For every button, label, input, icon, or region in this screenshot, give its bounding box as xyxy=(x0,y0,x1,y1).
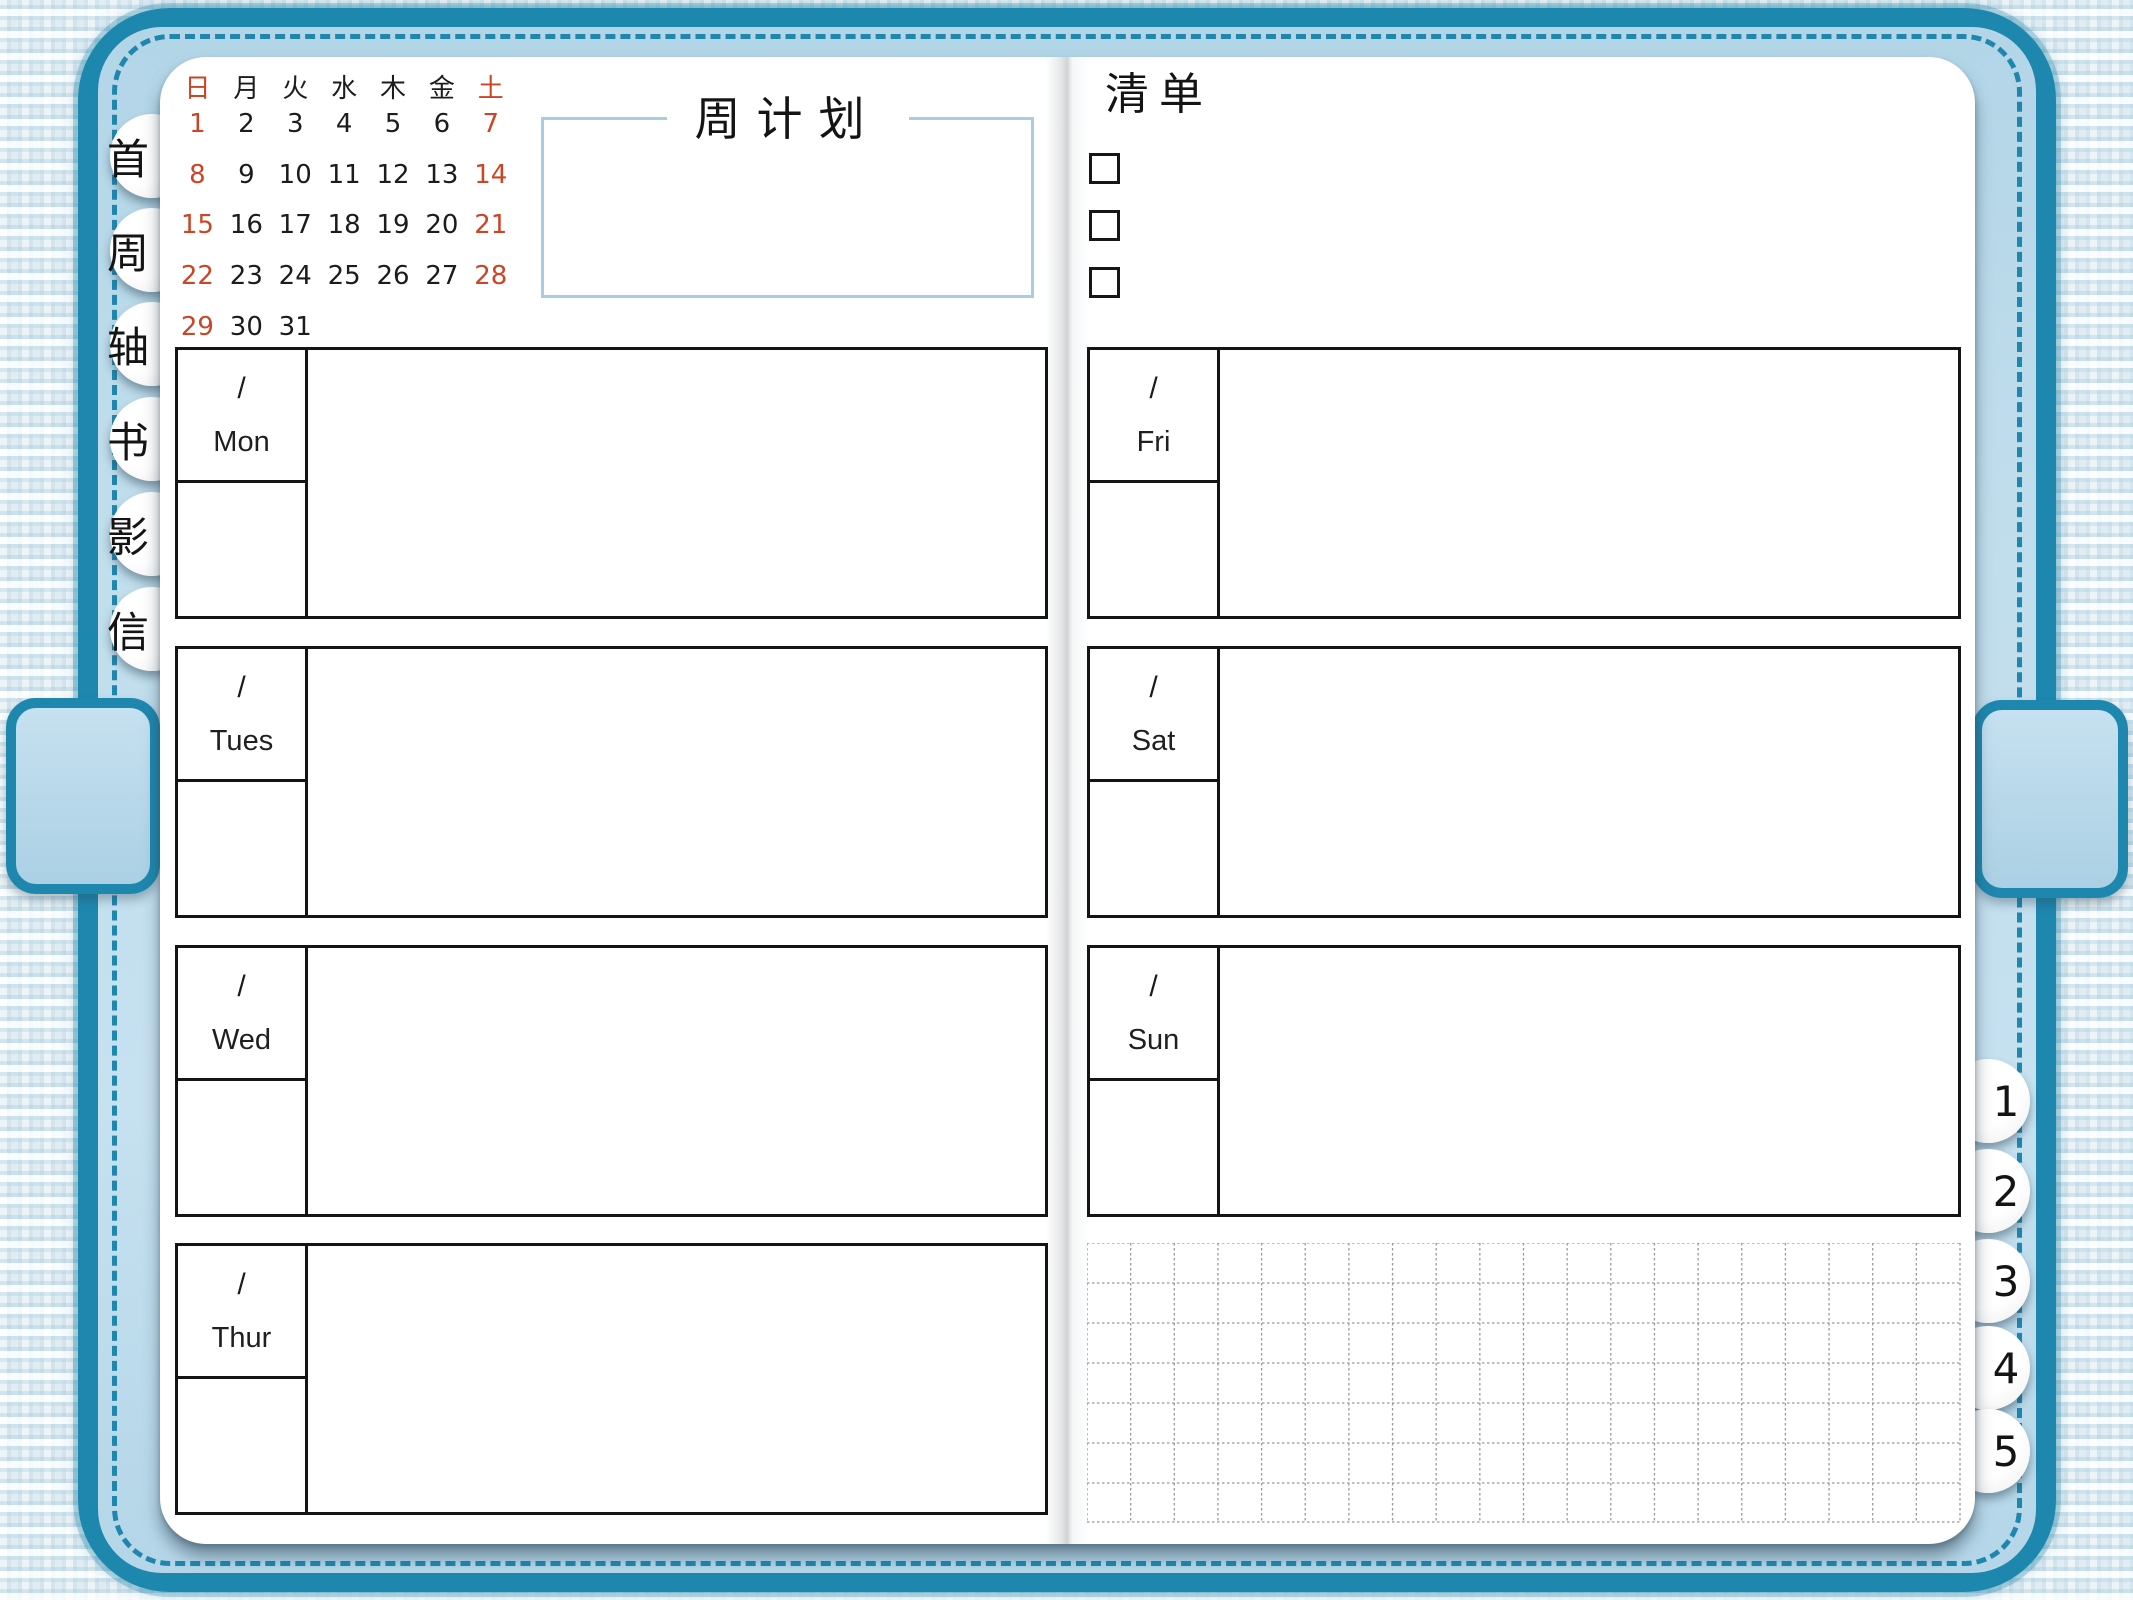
date-placeholder: / xyxy=(237,671,245,705)
calendar-date xyxy=(417,312,466,342)
day-label: Tues xyxy=(210,725,273,758)
date-placeholder: / xyxy=(237,1268,245,1302)
calendar-date[interactable]: 16 xyxy=(222,210,271,240)
page-content: 日月火水木金土123456789101112131415161718192021… xyxy=(0,0,2133,1600)
day-label: Thur xyxy=(212,1322,272,1355)
calendar-date[interactable]: 3 xyxy=(271,109,320,139)
day-content-cell[interactable] xyxy=(308,649,1045,915)
date-placeholder: / xyxy=(1149,372,1157,406)
calendar-date[interactable]: 26 xyxy=(369,261,418,291)
calendar-weekday-header: 土 xyxy=(466,74,515,104)
date-placeholder: / xyxy=(237,372,245,406)
calendar-date[interactable]: 13 xyxy=(417,160,466,190)
day-note-cell[interactable] xyxy=(178,1379,308,1512)
calendar-date[interactable]: 24 xyxy=(271,261,320,291)
calendar-week-row: 293031 xyxy=(173,312,515,342)
calendar-date[interactable]: 23 xyxy=(222,261,271,291)
calendar-date[interactable]: 1 xyxy=(173,109,222,139)
day-content-cell[interactable] xyxy=(308,948,1045,1214)
calendar-date[interactable]: 22 xyxy=(173,261,222,291)
calendar-weekday-header: 金 xyxy=(417,74,466,104)
day-date-cell[interactable]: /Mon xyxy=(178,350,308,483)
calendar-date xyxy=(320,312,369,342)
day-date-cell[interactable]: /Wed xyxy=(178,948,308,1081)
calendar-date[interactable]: 30 xyxy=(222,312,271,342)
calendar-week-row: 22232425262728 xyxy=(173,261,515,291)
day-note-cell[interactable] xyxy=(1090,483,1220,616)
calendar-date[interactable]: 25 xyxy=(320,261,369,291)
dot-grid-notes-area[interactable] xyxy=(1087,1243,1961,1523)
calendar-weekday-header: 水 xyxy=(320,74,369,104)
day-box-thur: /Thur xyxy=(175,1243,1048,1515)
day-box-mon: /Mon xyxy=(175,347,1048,619)
calendar-date[interactable]: 31 xyxy=(271,312,320,342)
calendar-date[interactable]: 15 xyxy=(173,210,222,240)
calendar-week-row: 891011121314 xyxy=(173,160,515,190)
calendar-date[interactable]: 19 xyxy=(369,210,418,240)
day-date-cell[interactable]: /Sat xyxy=(1090,649,1220,782)
date-placeholder: / xyxy=(237,970,245,1004)
calendar-weekday-header: 月 xyxy=(222,74,271,104)
day-date-cell[interactable]: /Thur xyxy=(178,1246,308,1379)
day-box-fri: /Fri xyxy=(1087,347,1961,619)
day-content-cell[interactable] xyxy=(1220,948,1958,1214)
calendar-date xyxy=(466,312,515,342)
day-note-cell[interactable] xyxy=(1090,782,1220,915)
calendar-date[interactable]: 18 xyxy=(320,210,369,240)
day-label: Sun xyxy=(1128,1024,1180,1057)
calendar-date[interactable]: 7 xyxy=(466,109,515,139)
day-note-cell[interactable] xyxy=(178,483,308,616)
calendar-date[interactable]: 4 xyxy=(320,109,369,139)
calendar-date[interactable]: 14 xyxy=(466,160,515,190)
calendar-week-row: 1234567 xyxy=(173,109,515,139)
day-label: Mon xyxy=(213,426,269,459)
day-box-wed: /Wed xyxy=(175,945,1048,1217)
date-placeholder: / xyxy=(1149,671,1157,705)
calendar-date[interactable]: 17 xyxy=(271,210,320,240)
checklist-checkbox[interactable] xyxy=(1089,153,1120,184)
weekly-plan-title: 周计划 xyxy=(667,90,909,148)
day-date-cell[interactable]: /Sun xyxy=(1090,948,1220,1081)
mini-month-calendar: 日月火水木金土123456789101112131415161718192021… xyxy=(173,74,519,344)
calendar-date[interactable]: 12 xyxy=(369,160,418,190)
day-box-tues: /Tues xyxy=(175,646,1048,918)
day-box-sat: /Sat xyxy=(1087,646,1961,918)
day-content-cell[interactable] xyxy=(1220,350,1958,616)
day-date-cell[interactable]: /Tues xyxy=(178,649,308,782)
calendar-date[interactable]: 6 xyxy=(417,109,466,139)
day-box-sun: /Sun xyxy=(1087,945,1961,1217)
day-content-cell[interactable] xyxy=(1220,649,1958,915)
calendar-date[interactable]: 27 xyxy=(417,261,466,291)
day-note-cell[interactable] xyxy=(1090,1081,1220,1214)
checklist-checkbox[interactable] xyxy=(1089,267,1120,298)
day-content-cell[interactable] xyxy=(308,1246,1045,1512)
day-note-cell[interactable] xyxy=(178,782,308,915)
day-note-cell[interactable] xyxy=(178,1081,308,1214)
weekly-plan-input-area[interactable]: 周计划 xyxy=(541,117,1034,298)
calendar-date[interactable]: 8 xyxy=(173,160,222,190)
day-label: Wed xyxy=(212,1024,271,1057)
checklist-title: 清单 xyxy=(1105,68,1213,122)
calendar-header-row: 日月火水木金土 xyxy=(173,74,515,104)
calendar-weekday-header: 日 xyxy=(173,74,222,104)
dot-grid-icon xyxy=(1087,1243,1961,1523)
weekly-planner-screen: 首周轴书影信 12345 日月火水木金土12345678910111213141… xyxy=(0,0,2133,1600)
day-label: Sat xyxy=(1132,725,1176,758)
day-label: Fri xyxy=(1137,426,1171,459)
calendar-date[interactable]: 21 xyxy=(466,210,515,240)
calendar-date[interactable]: 2 xyxy=(222,109,271,139)
day-date-cell[interactable]: /Fri xyxy=(1090,350,1220,483)
calendar-weekday-header: 木 xyxy=(369,74,418,104)
calendar-date[interactable]: 29 xyxy=(173,312,222,342)
date-placeholder: / xyxy=(1149,970,1157,1004)
calendar-weekday-header: 火 xyxy=(271,74,320,104)
calendar-date xyxy=(369,312,418,342)
calendar-week-row: 15161718192021 xyxy=(173,210,515,240)
calendar-date[interactable]: 9 xyxy=(222,160,271,190)
calendar-date[interactable]: 28 xyxy=(466,261,515,291)
checklist-checkbox[interactable] xyxy=(1089,210,1120,241)
calendar-date[interactable]: 10 xyxy=(271,160,320,190)
calendar-date[interactable]: 20 xyxy=(417,210,466,240)
day-content-cell[interactable] xyxy=(308,350,1045,616)
calendar-date[interactable]: 11 xyxy=(320,160,369,190)
calendar-date[interactable]: 5 xyxy=(369,109,418,139)
